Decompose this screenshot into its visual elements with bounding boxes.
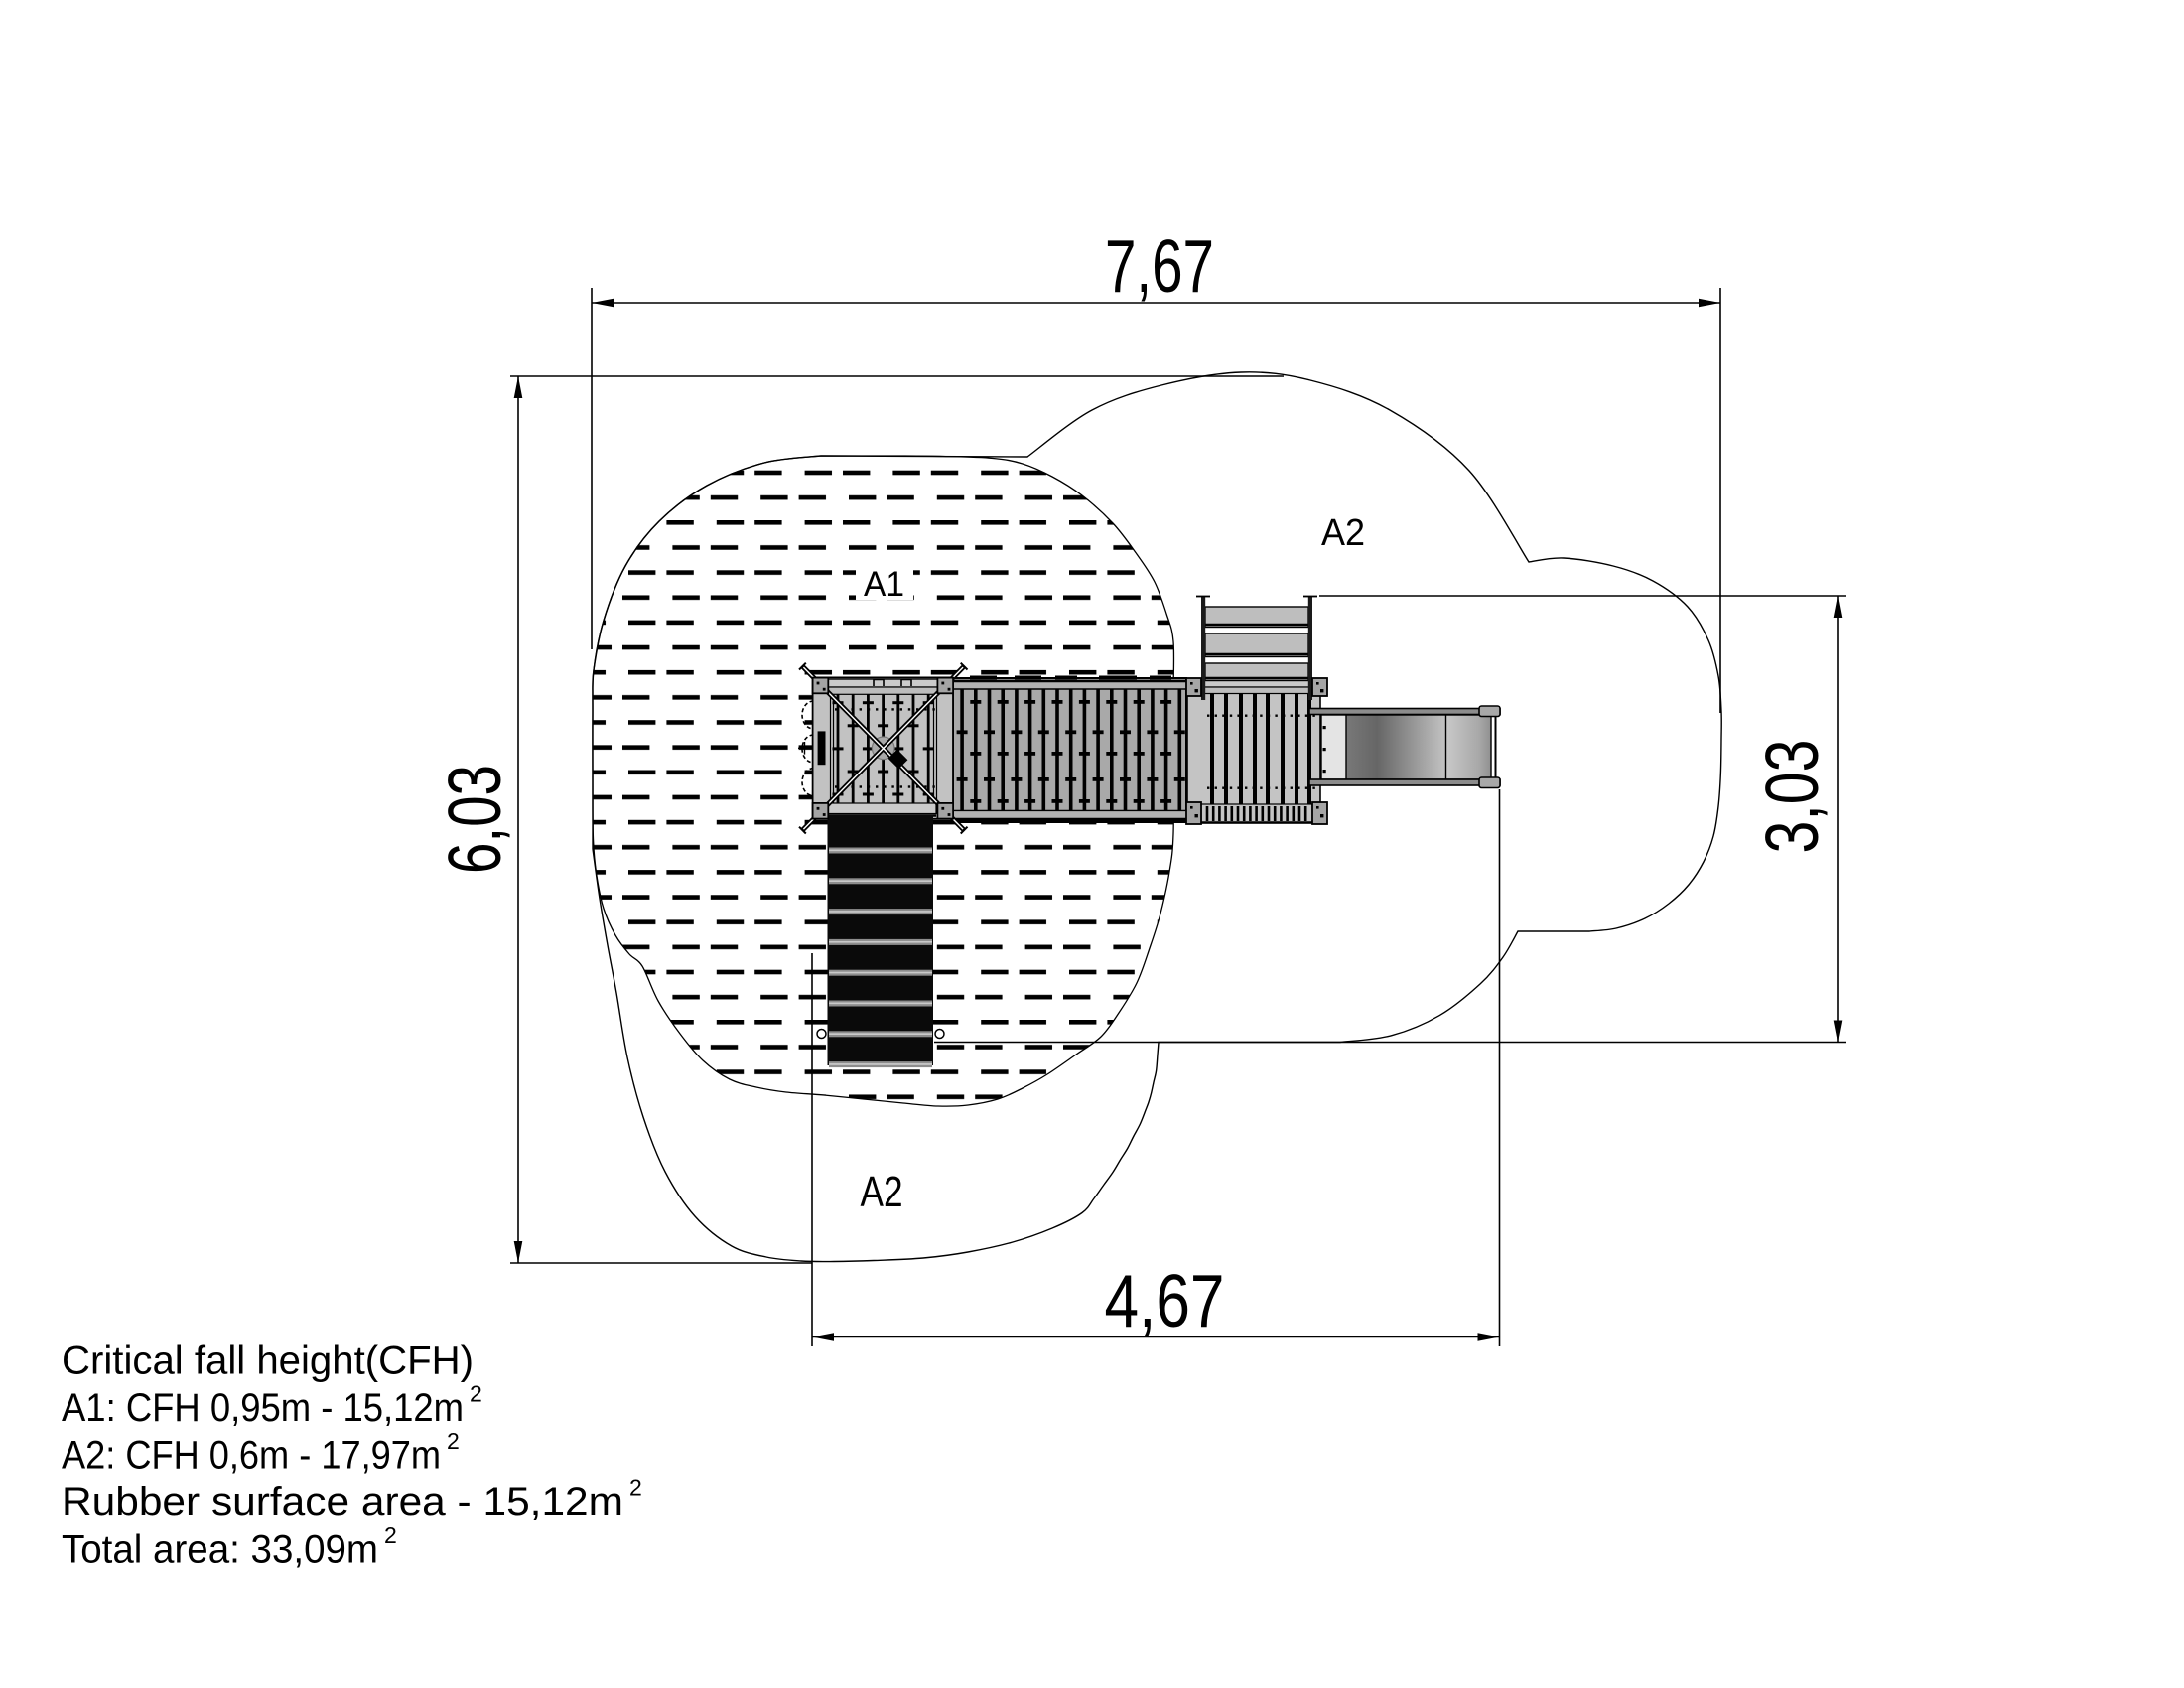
svg-text:2: 2 [629,1476,642,1501]
svg-text:A2: A2 [861,1168,903,1216]
svg-text:3,03: 3,03 [1750,740,1834,854]
svg-text:A1: A1 [864,565,904,604]
svg-text:2: 2 [384,1522,397,1548]
svg-text:4,67: 4,67 [1105,1259,1225,1342]
svg-text:Rubber surface area - 15,12m: Rubber surface area - 15,12m [62,1480,623,1524]
svg-text:Critical fall height(CFH): Critical fall height(CFH) [62,1339,474,1383]
svg-text:6,03: 6,03 [433,765,516,874]
svg-text:Total area: 33,09m: Total area: 33,09m [62,1528,378,1572]
svg-text:7,67: 7,67 [1105,224,1214,308]
svg-text:2: 2 [447,1428,460,1454]
svg-text:A1: CFH 0,95m - 15,12m: A1: CFH 0,95m - 15,12m [62,1386,464,1430]
svg-text:2: 2 [470,1381,482,1407]
svg-text:A2: A2 [1321,512,1365,554]
svg-text:A2: CFH 0,6m - 17,97m: A2: CFH 0,6m - 17,97m [62,1434,441,1477]
